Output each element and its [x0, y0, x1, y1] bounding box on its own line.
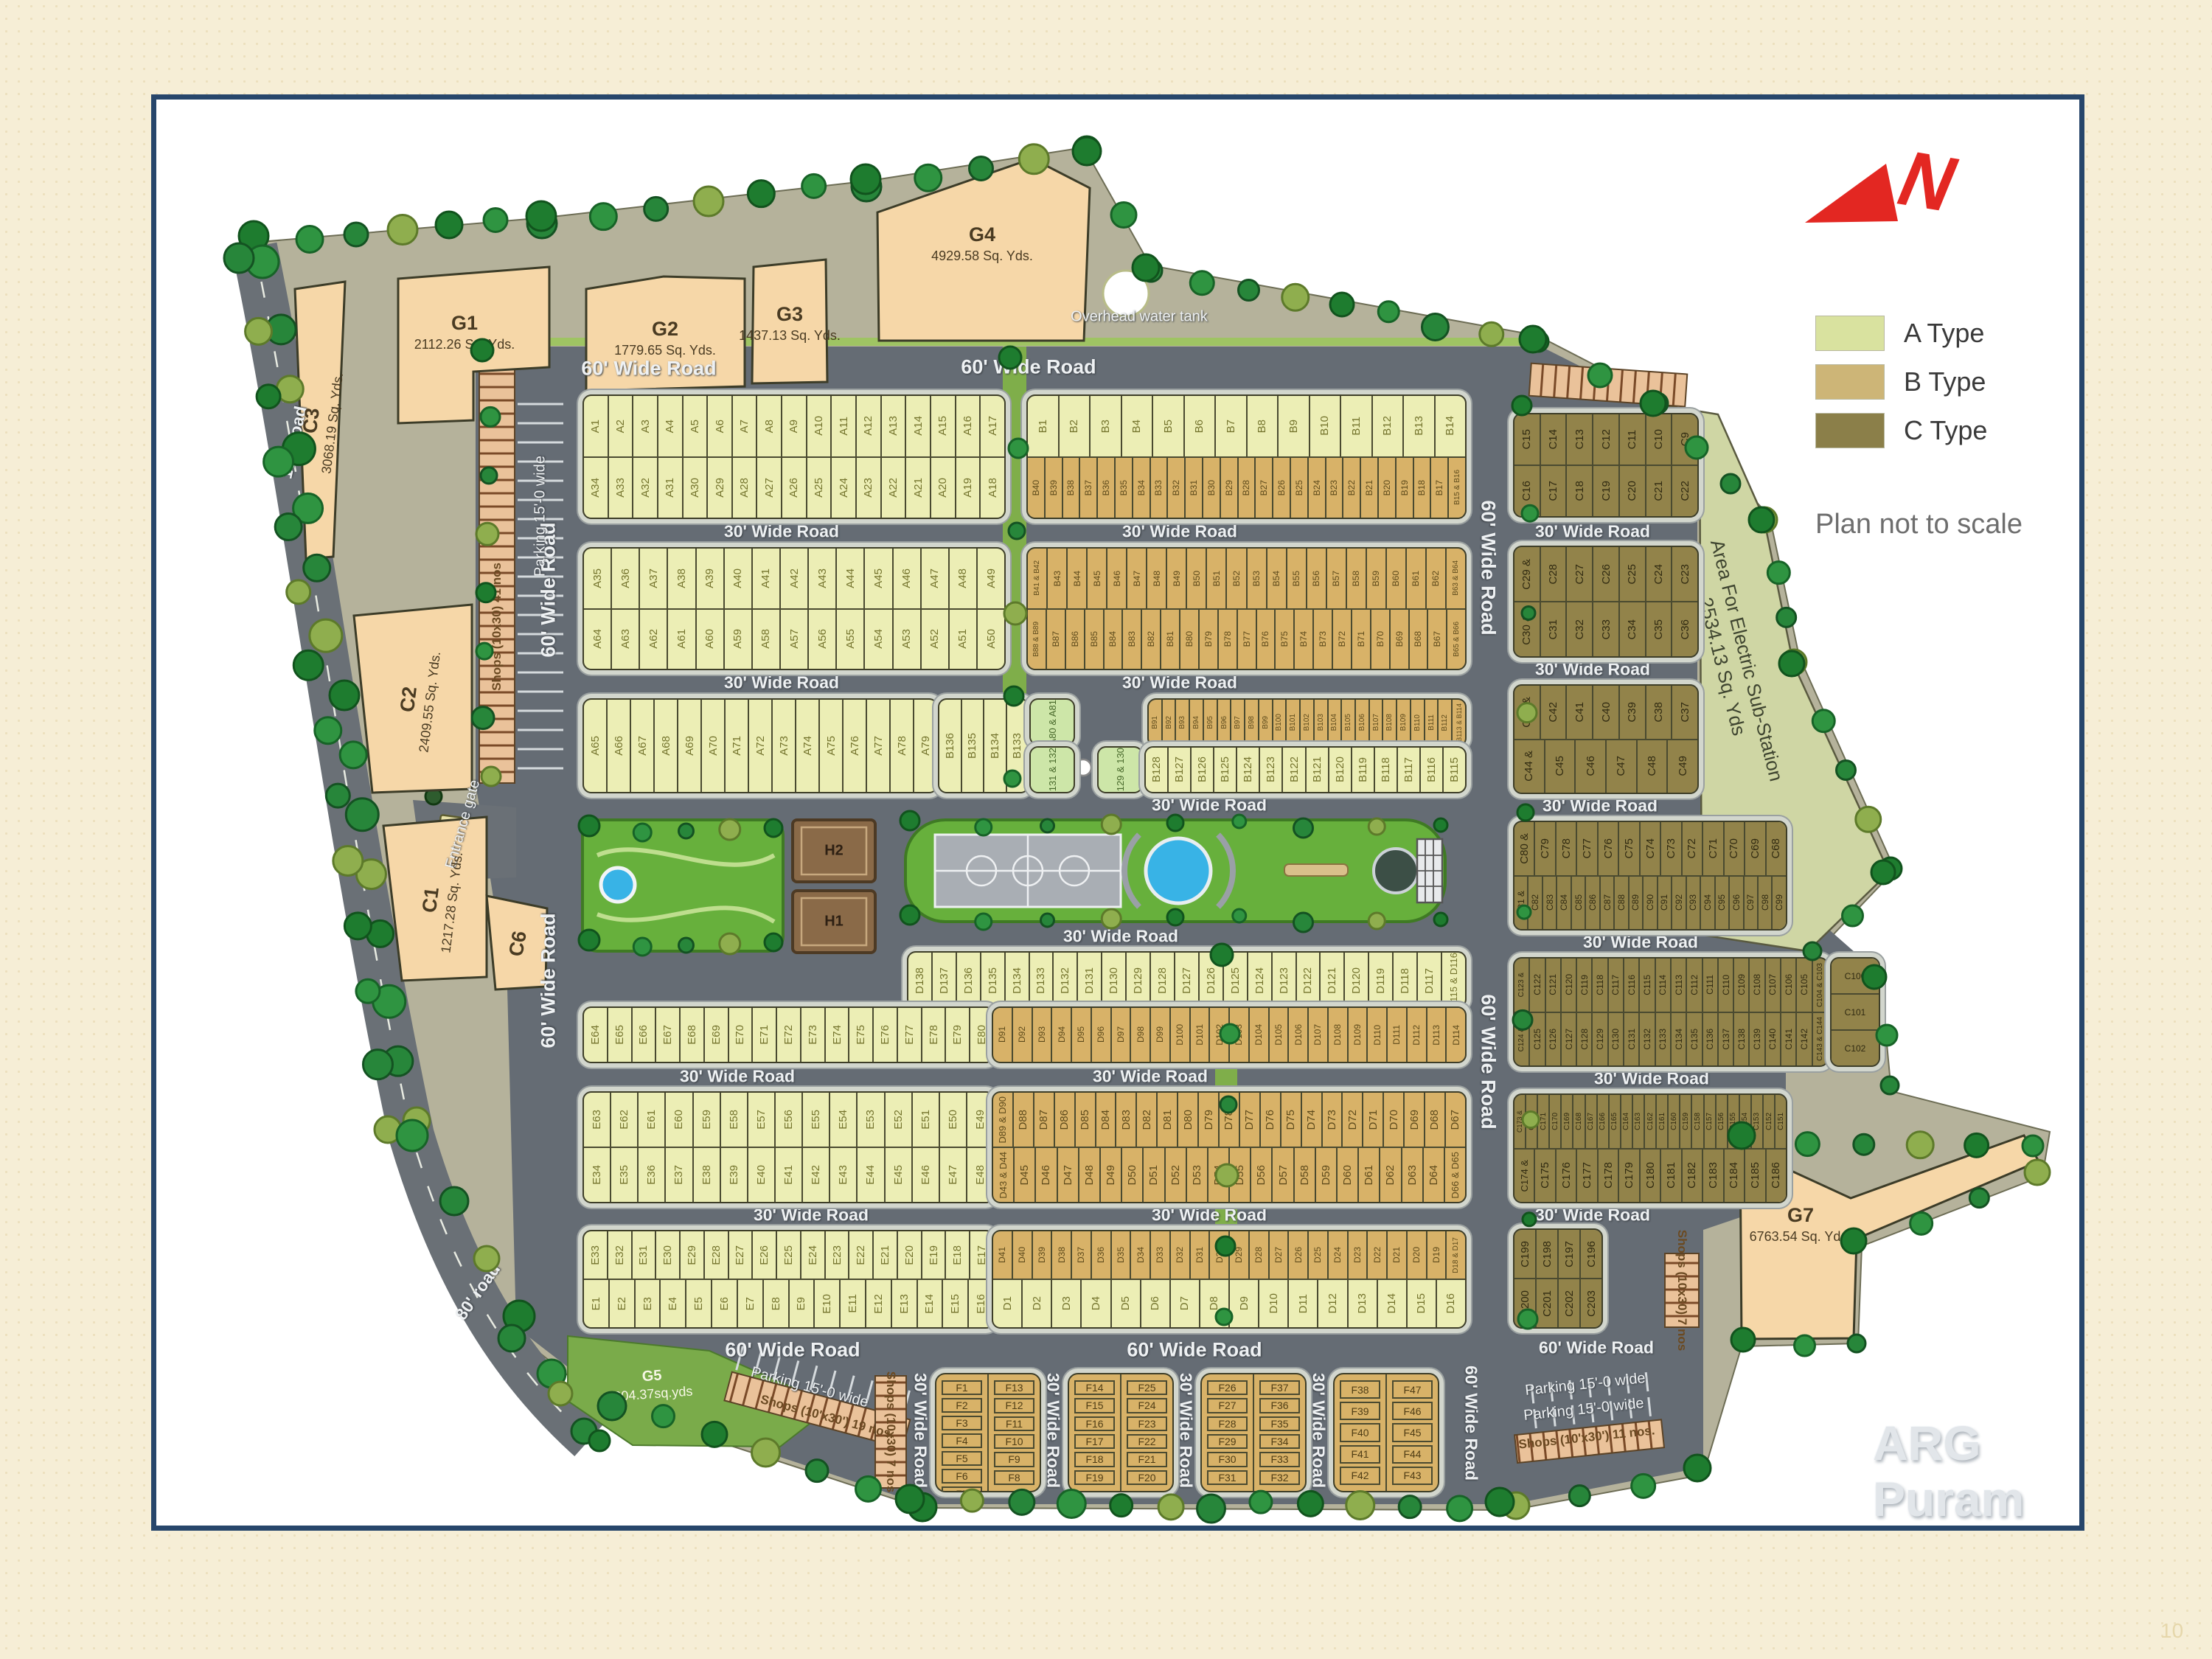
plot-cell: D97 [1110, 1008, 1130, 1062]
plot-id: B12 [1381, 416, 1394, 436]
road-label: 60' Wide Road [1539, 1338, 1654, 1358]
plot-id: A60 [703, 629, 716, 649]
plot-cell: B3 [1089, 396, 1121, 456]
plot-cell: B22 [1342, 458, 1360, 518]
plot-id: E31 [637, 1245, 650, 1265]
plot-cell: E57 [747, 1093, 774, 1147]
plot-block: A1A2A3A4A5A6A7A8A9A10A11A12A13A14A15A16A… [582, 394, 1006, 519]
plot-id: C107 [1767, 974, 1778, 995]
plot-id: B54 [1271, 571, 1281, 586]
plot-cell: B34 [1132, 458, 1150, 518]
plot-id: C132 [1642, 1029, 1652, 1050]
plot-cell: D57 [1271, 1148, 1293, 1202]
plot-cell: E17 [969, 1231, 993, 1279]
plot-cell: A34 [584, 458, 608, 518]
plot-id: D122 [1301, 967, 1314, 994]
plot-id: D131 [1083, 967, 1096, 994]
plot-cell: A22 [880, 458, 905, 518]
plot-cell: D47 [1057, 1148, 1078, 1202]
plot-id: A6 [714, 420, 726, 433]
plot-id: C171 [1540, 1113, 1548, 1130]
road-label: 30' Wide Road [1176, 1373, 1196, 1488]
plot-id: E52 [892, 1110, 905, 1130]
plot-cell: C167 [1585, 1095, 1596, 1148]
plot-id: C129 [1595, 1029, 1605, 1050]
plot-id: B56 [1311, 571, 1321, 586]
plot-id: A35 [591, 568, 604, 588]
plot-cell: D31 [1189, 1231, 1209, 1279]
plot-id: C33 [1600, 619, 1613, 640]
plot-id: C98 [1760, 894, 1770, 911]
plot-cell: B38 [1062, 458, 1079, 518]
plot-id: A11 [838, 417, 850, 436]
plot-cell: B76 [1256, 610, 1275, 669]
plot-cell: C93 [1686, 877, 1700, 930]
plot-cell: E34 [584, 1148, 610, 1202]
legend: A Type B Type C Type [1815, 316, 1987, 462]
plot-id: B44 [1072, 571, 1082, 586]
plot-id: A79 [919, 736, 932, 756]
plot-cell: D1 [993, 1280, 1021, 1327]
plot-cell: C138 [1733, 1013, 1748, 1066]
plot-id: A15 [936, 416, 949, 436]
legend-swatch-a-type [1815, 316, 1885, 351]
plot-id: D49 [1105, 1165, 1117, 1186]
plot-id: A10 [813, 416, 825, 436]
plot-cell: E18 [945, 1231, 969, 1279]
road-label: 60' Wide Road [581, 358, 716, 380]
plot-cell: C78 [1555, 822, 1576, 875]
plot-cell: A68 [653, 700, 677, 792]
plot-id: B93 [1178, 716, 1186, 729]
plot-id: C31 [1547, 619, 1559, 640]
plot-cell: C139 [1748, 1013, 1764, 1066]
plot-cell: C36 [1671, 602, 1697, 656]
plot-cell: E26 [751, 1231, 776, 1279]
plot-id: B17 [1434, 480, 1444, 495]
plot-id: D36 [1096, 1247, 1106, 1263]
plot-id: C114 [1658, 975, 1668, 995]
plot-id: C18 [1573, 481, 1586, 501]
plot-cell: D134 [1004, 953, 1029, 1008]
plot-cell: C126 [1545, 1013, 1560, 1066]
plot-cell: D80 [1177, 1093, 1197, 1147]
plot-id: D79 [1203, 1110, 1215, 1130]
plot-id: B53 [1251, 571, 1262, 586]
plot-cell: C94 [1700, 877, 1714, 930]
plot-block: E33E32E31E30E29E28E27E26E25E24E23E22E21E… [582, 1230, 995, 1329]
plot-block: B131 & 132 [1029, 746, 1075, 793]
plot-cell: A3 [632, 396, 657, 456]
plot-cell: B32 [1166, 458, 1184, 518]
plot-id: B124 [1242, 757, 1254, 782]
plot-id: C28 [1547, 564, 1559, 585]
plot-id: C73 [1665, 838, 1677, 859]
plot-id: D130 [1107, 967, 1120, 994]
plot-column: F47F46F45F44F43 [1385, 1374, 1438, 1491]
plot-id: D108 [1332, 1024, 1343, 1046]
plot-id: C39 [1626, 702, 1638, 723]
plot-id: C179 [1623, 1162, 1635, 1189]
plot-cell: C168 [1572, 1095, 1584, 1148]
plot-cell: B39 [1044, 458, 1062, 518]
plot-id: B39 [1048, 480, 1059, 495]
plot-row: E1E2E3E4E5E6E7E8E9E10E11E12E13E14E15E16 [584, 1279, 993, 1327]
plot-cell: C30 & [1514, 602, 1540, 656]
road-label: 30' Wide Road [1309, 1373, 1329, 1488]
plot-id: E17 [975, 1245, 988, 1265]
plot-cell: D30 [1208, 1231, 1228, 1279]
road-label: 30' Wide Road [1543, 796, 1658, 816]
plot-cell: E50 [939, 1093, 966, 1147]
plot-cell: D51 [1142, 1148, 1164, 1202]
plot-cell: E23 [824, 1231, 849, 1279]
plot-cell: D85 [1074, 1093, 1095, 1147]
plot-cell: B117 [1397, 748, 1419, 792]
plot-label-g7: G76763.54 Sq. Yda. [1750, 1203, 1852, 1245]
plot-cell: E30 [655, 1231, 679, 1279]
plot-cell: E42 [801, 1148, 829, 1202]
plot-id: D68 [1428, 1110, 1441, 1130]
plot-id: B20 [1382, 480, 1392, 495]
plot-cell: F47 [1392, 1380, 1433, 1399]
plot-cell: B70 [1370, 610, 1389, 669]
plot-id: A16 [961, 416, 974, 436]
plot-row: C29 &C28C27C26C25C24C23 [1514, 547, 1697, 601]
plot-id: B77 [1242, 631, 1252, 647]
plot-id: C96 [1731, 894, 1742, 911]
plot-cell: B84 [1103, 610, 1122, 669]
plot-id: C49 [1677, 756, 1689, 776]
plot-cell: B49 [1166, 549, 1186, 608]
plot-id: A21 [912, 478, 925, 498]
plot-row: C100 [1832, 959, 1879, 993]
plot-cell: F43 [1392, 1467, 1433, 1485]
plot-cell: D122 [1295, 953, 1320, 1008]
plot-id: C125 [1532, 1029, 1543, 1050]
plot-cell: C47 [1605, 740, 1636, 793]
plot-column: F37F36F35F34F33F32 [1253, 1374, 1305, 1491]
plot-id: C153 [1753, 1113, 1761, 1130]
plot-block: B1B2B3B4B5B6B7B8B9B10B11B12B13B14B40B39B… [1026, 394, 1467, 519]
plot-cell: C135 [1686, 1013, 1701, 1066]
road-label: 30' Wide Road [754, 1206, 869, 1225]
plot-cell: D34 [1130, 1231, 1150, 1279]
plot-cell: E44 [856, 1148, 883, 1202]
plot-label-c6: C6 [504, 929, 532, 959]
road-label: 30' Wide Road [1043, 1373, 1063, 1488]
plot-id: D117 [1423, 968, 1436, 994]
plot-cell: C134 [1670, 1013, 1686, 1066]
plot-id: C19 [1600, 481, 1613, 501]
plot-id: A73 [778, 736, 790, 756]
plot-cell: C79 [1534, 822, 1554, 875]
plot-id: D69 [1408, 1110, 1421, 1130]
plot-cell: B7 [1214, 396, 1246, 456]
plot-cell: E8 [762, 1280, 788, 1327]
plot-id: C158 [1694, 1113, 1702, 1130]
plot-cell: E11 [839, 1280, 865, 1327]
plot-id: C175 [1539, 1162, 1551, 1189]
plot-cell: B87 [1046, 610, 1065, 669]
plot-id: B40 [1031, 480, 1041, 495]
plot-cell: A29 [706, 458, 731, 518]
plot-cell: D52 [1164, 1148, 1186, 1202]
road-label: 60' Wide Road [538, 913, 560, 1048]
plot-id: C137 [1721, 1029, 1731, 1050]
plot-id: A25 [813, 478, 825, 498]
plot-cell: C112 [1686, 959, 1701, 1012]
road-label: 30' Wide Road [1535, 660, 1650, 680]
road-label: 60' Wide Road [1477, 500, 1500, 635]
plot-label-g4: G44929.58 Sq. Yds. [931, 223, 1033, 264]
plot-block: C29 &C28C27C26C25C24C23C30 &C31C32C33C34… [1513, 546, 1699, 658]
plot-id: C71 [1707, 838, 1719, 859]
plot-row: C43 &C42C41C40C39C38C37 [1514, 686, 1697, 739]
plot-id: E58 [728, 1110, 740, 1130]
plot-cell: B10 [1309, 396, 1340, 456]
plot-id: E24 [807, 1245, 819, 1265]
plot-id: C95 [1717, 894, 1727, 911]
plot-cell: F25 [1127, 1380, 1167, 1395]
plot-cell: C26 [1592, 547, 1618, 601]
plot-cell: F26 [1207, 1380, 1248, 1395]
plot-cell: C119 [1576, 959, 1591, 1012]
plot-cell: D60 [1336, 1148, 1357, 1202]
legend-swatch-b-type [1815, 364, 1885, 400]
plot-id: E42 [810, 1165, 822, 1185]
plot-cell: E49 [966, 1093, 993, 1147]
plot-cell: D115 & D116 [1441, 953, 1465, 1008]
plot-cell: B127 [1167, 748, 1190, 792]
plot-cell: E64 [584, 1008, 607, 1062]
plot-id: D137 [938, 967, 950, 994]
plot-id: B35 [1119, 480, 1129, 495]
plot-id: D66 & D65 [1450, 1152, 1461, 1199]
plot-id: E14 [923, 1294, 936, 1314]
plot-id: A34 [589, 478, 602, 498]
plot-cell: F24 [1127, 1398, 1167, 1413]
plot-id: D33 [1155, 1247, 1165, 1263]
plot-id: B111 [1427, 714, 1436, 731]
plot-row: A34A33A32A31A30A29A28A27A26A25A24A23A22A… [584, 456, 1004, 518]
plot-id: A65 [589, 736, 602, 756]
plot-id: C127 [1564, 1029, 1574, 1050]
plot-cell: B26 [1272, 458, 1290, 518]
plot-id: C46 [1585, 756, 1597, 776]
plot-id: C14 [1547, 429, 1559, 450]
plot-cell: C124 & [1514, 1013, 1528, 1066]
plot-id: D7 [1178, 1296, 1191, 1310]
plot-row: C174 &C175C176C177C178C179C180C181C182C1… [1514, 1148, 1786, 1203]
plot-id: D70 [1388, 1110, 1400, 1130]
plot-id: A2 [614, 420, 627, 433]
plot-id: E54 [837, 1110, 849, 1130]
plot-id: B32 [1171, 480, 1181, 495]
plot-id: C115 [1642, 975, 1652, 995]
plot-cell: A18 [979, 458, 1004, 518]
plot-id: A45 [872, 568, 885, 588]
plot-label-g1: G12112.26 Sq. Yds. [414, 311, 515, 352]
plot-id: A30 [689, 478, 701, 498]
plot-cell: B53 [1246, 549, 1266, 608]
plot-id: C68 [1770, 838, 1782, 859]
plot-cell: E21 [872, 1231, 897, 1279]
plot-cell: A48 [948, 549, 976, 608]
plot-id: D112 [1411, 1025, 1422, 1046]
plot-cell: A45 [863, 549, 891, 608]
plot-label-h2: H2 [824, 842, 844, 860]
plot-id: B70 [1375, 631, 1385, 647]
plot-id: E1 [590, 1297, 602, 1310]
plot-id: E53 [864, 1110, 877, 1130]
plot-id: A56 [816, 629, 829, 649]
plot-id: C22 [1679, 481, 1691, 501]
plot-block: B128B127B126B125B124B123B122B121B120B119… [1144, 746, 1467, 793]
plot-cell: A6 [706, 396, 731, 456]
plot-column: F1F2F3F4F5F6F7 [936, 1374, 987, 1491]
plot-cell: C28 [1540, 547, 1566, 601]
plot-id: B55 [1291, 571, 1301, 586]
plot-cell: A8 [756, 396, 781, 456]
plot-cell: D126 [1198, 953, 1222, 1008]
plot-cell: B107 [1368, 700, 1382, 745]
plot-cell: B109 [1396, 700, 1410, 745]
plot-id: A52 [928, 629, 941, 649]
plot-id: D83 [1120, 1110, 1133, 1130]
plot-cell: A26 [781, 458, 806, 518]
plot-cell: A10 [806, 396, 831, 456]
plot-id: D111 [1391, 1025, 1402, 1045]
plot-id: D102 [1214, 1024, 1225, 1046]
plot-id: E55 [810, 1110, 822, 1130]
plot-cell: D100 [1169, 1008, 1189, 1062]
plot-cell: B115 [1442, 748, 1465, 792]
plot-block: B91B92B93B94B95B96B97B98B99B100B101B102B… [1147, 698, 1467, 747]
plot-id: D9 [1238, 1296, 1251, 1310]
plot-cell: C37 [1671, 686, 1697, 739]
plot-cell: B135 [961, 700, 984, 792]
plot-cell: A11 [830, 396, 855, 456]
plot-id: C170 [1551, 1113, 1559, 1130]
plot-cell: A31 [657, 458, 682, 518]
plot-id: B6 [1193, 420, 1206, 433]
plot-id: C30 & [1520, 614, 1533, 645]
plot-id: D92 [1017, 1026, 1027, 1043]
plot-id: D115 & D116 [1448, 953, 1459, 1008]
plot-id: B104 [1330, 714, 1338, 731]
plot-id: A37 [647, 568, 660, 588]
plot-cell: B29 [1220, 458, 1237, 518]
plot-id: B34 [1136, 480, 1147, 495]
plot-cell: A71 [724, 700, 748, 792]
plot-id: D119 [1374, 968, 1387, 994]
plot-cell: B106 [1354, 700, 1368, 745]
plot-cell: D98 [1130, 1008, 1150, 1062]
plot-cell: B73 [1312, 610, 1332, 669]
plot-cell: D68 [1424, 1093, 1444, 1147]
plot-cell: F44 [1392, 1445, 1433, 1464]
plot-cell: A16 [955, 396, 980, 456]
plot-cell: E45 [884, 1148, 911, 1202]
plot-cell: C107 [1764, 959, 1780, 1012]
plot-cell: C25 [1618, 547, 1645, 601]
plot-id: D14 [1385, 1293, 1398, 1314]
plot-cell: D110 [1366, 1008, 1386, 1062]
plot-cell: C196 [1579, 1230, 1601, 1278]
plot-cell: C137 [1717, 1013, 1733, 1066]
plot-id: D56 [1255, 1165, 1267, 1186]
plot-id: A51 [956, 629, 969, 649]
plot-cell: A21 [905, 458, 930, 518]
plot-block: D89 & D90D88D87D86D85D84D83D82D81D80D79D… [992, 1091, 1467, 1203]
plot-id: C121 [1548, 974, 1558, 995]
plot-block: C173 &C172C171C170C169C168C167C166C165C1… [1513, 1093, 1787, 1203]
plot-cell: D5 [1110, 1280, 1140, 1327]
plot-id: B91 [1151, 716, 1159, 729]
plot-cell: E28 [703, 1231, 728, 1279]
plot-row: D138D137D136D135D134D133D132D131D130D129… [908, 953, 1465, 1008]
plot-block: E63E62E61E60E59E58E57E56E55E54E53E52E51E… [582, 1091, 995, 1203]
plot-id: D55 [1234, 1165, 1246, 1186]
plot-id: E41 [782, 1165, 795, 1185]
road-label: 30' Wide Road [1535, 1206, 1650, 1225]
plot-id: B25 [1294, 480, 1304, 495]
plot-id: C74 [1644, 838, 1657, 859]
plot-id: A46 [900, 568, 913, 588]
road-label: 60' Wide Road [1461, 1366, 1481, 1481]
plot-row: B136B135B134B133 [939, 700, 1028, 792]
plot-id: E36 [645, 1165, 658, 1185]
plot-id: E38 [700, 1165, 713, 1185]
road-label: 30' Wide Road [911, 1373, 931, 1488]
plot-cell: E62 [610, 1093, 637, 1147]
plot-id: D129 [1132, 967, 1144, 994]
plot-cell: A23 [855, 458, 880, 518]
plot-cell: C40 [1592, 686, 1618, 739]
plot-cell: C17 [1540, 466, 1566, 516]
plot-id: C108 [1752, 974, 1762, 995]
plot-id: C11 [1626, 430, 1638, 449]
plot-cell: D26 [1287, 1231, 1307, 1279]
plot-cell: F31 [1207, 1470, 1248, 1485]
plot-id: E71 [758, 1025, 771, 1045]
plot-cell: C156 [1715, 1095, 1727, 1148]
plot-cell: A5 [682, 396, 707, 456]
plot-cell: C201 [1535, 1279, 1557, 1327]
plot-column: F38F39F40F41F42 [1335, 1374, 1385, 1491]
plot-cell: B77 [1237, 610, 1256, 669]
plot-cell: A59 [723, 610, 751, 669]
plot-id: D31 [1194, 1247, 1205, 1263]
plot-cell: B24 [1307, 458, 1325, 518]
plot-id: E72 [782, 1025, 795, 1045]
plot-cell: C178 [1597, 1150, 1618, 1203]
plot-id: C152 [1765, 1113, 1773, 1130]
plot-id: D127 [1180, 967, 1193, 994]
plot-id: C123 & [1517, 973, 1526, 997]
north-arrow-icon: N [1792, 147, 2035, 258]
plot-cell: C41 [1565, 686, 1592, 739]
plot-id: B23 [1329, 480, 1339, 495]
plot-cell: C42 [1540, 686, 1566, 739]
road-label: 30' Wide Road [680, 1067, 795, 1087]
plot-cell: D95 [1071, 1008, 1091, 1062]
plot-id: C21 [1652, 481, 1665, 501]
plot-cell: D3 [1051, 1280, 1080, 1327]
plot-id: B103 [1317, 714, 1325, 731]
plot-id: D132 [1059, 967, 1071, 994]
